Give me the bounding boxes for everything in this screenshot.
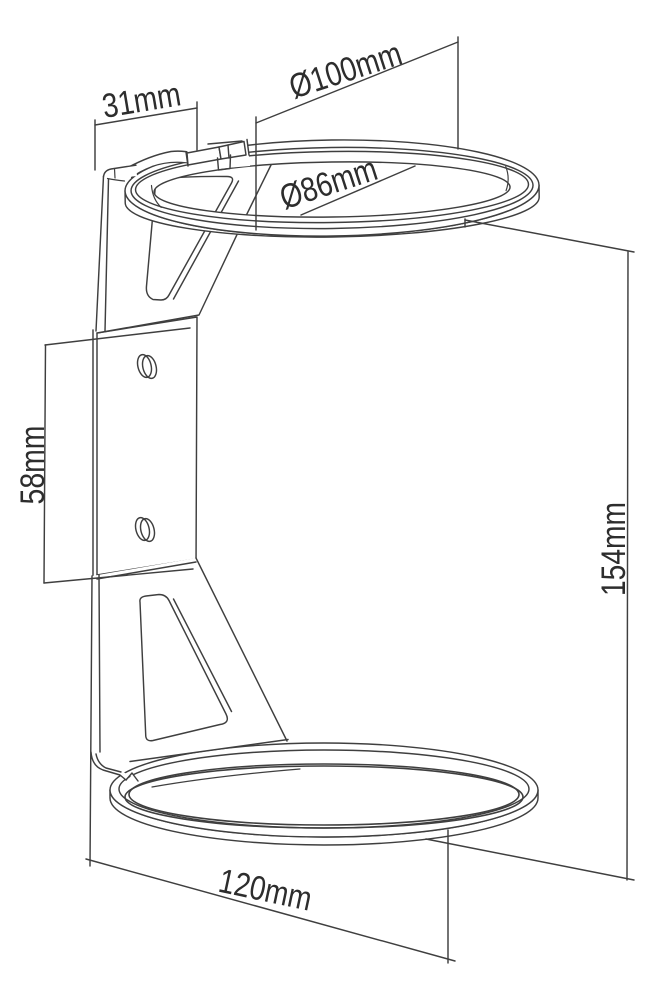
svg-text:120mm: 120mm (215, 862, 315, 919)
svg-text:154mm: 154mm (595, 502, 633, 596)
svg-text:Ø100mm: Ø100mm (285, 35, 407, 107)
svg-text:31mm: 31mm (99, 75, 183, 126)
svg-text:58mm: 58mm (14, 426, 52, 505)
